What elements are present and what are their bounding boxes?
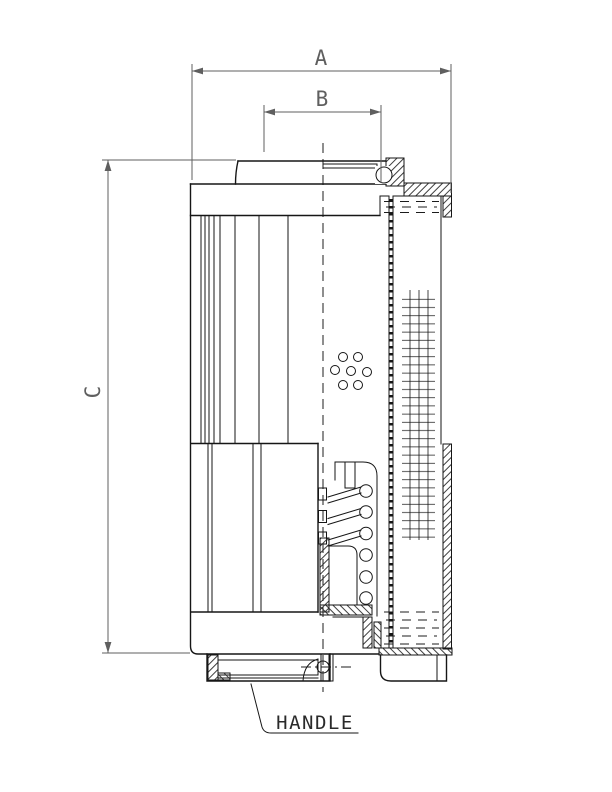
pleated-media-upper	[201, 216, 288, 444]
bypass-spring-assembly	[319, 462, 382, 648]
support-cage-lower	[191, 444, 318, 613]
handle-callout: HANDLE	[251, 684, 358, 734]
spring-seat-base	[320, 605, 372, 615]
filter-section-drawing: A B C HANDLE	[0, 0, 612, 792]
drain-holes	[331, 353, 372, 390]
dimension-c: C	[81, 160, 236, 653]
dim-label-a: A	[315, 46, 328, 70]
perforated-center-tube	[389, 196, 393, 648]
dimension-a: A	[192, 46, 451, 193]
handle	[207, 654, 330, 681]
handle-callout-label: HANDLE	[276, 712, 354, 734]
engineering-drawing-page: A B C HANDLE	[0, 0, 612, 792]
handle-pin	[301, 655, 352, 681]
wire-mesh-screen	[402, 290, 435, 540]
spring-seat-wall	[320, 538, 329, 612]
dim-label-c: C	[81, 386, 105, 399]
dim-label-b: B	[316, 87, 329, 111]
